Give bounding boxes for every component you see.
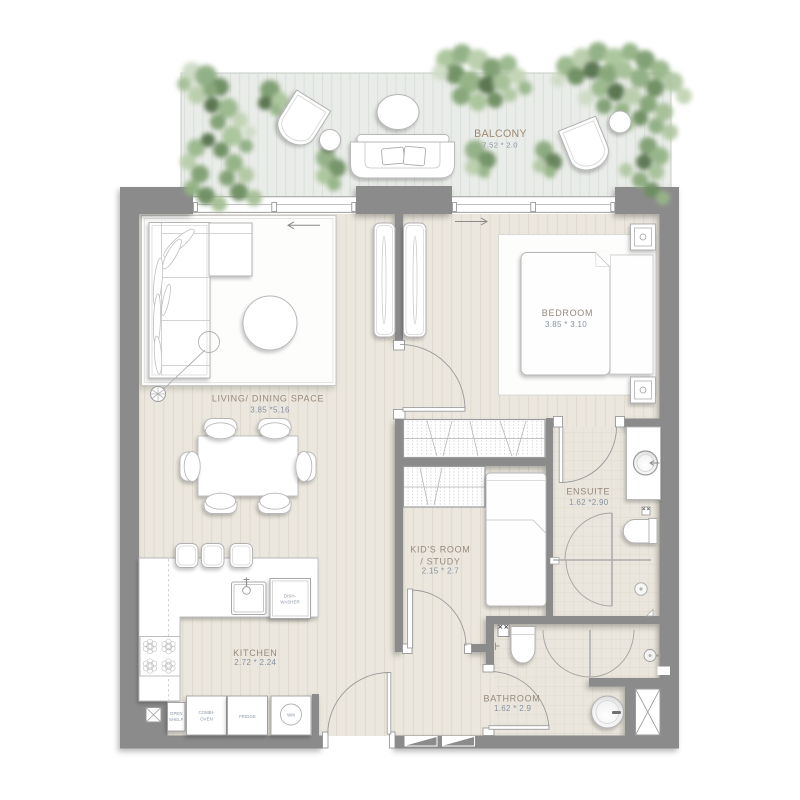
svg-text:ENSUITE: ENSUITE	[566, 487, 610, 497]
svg-text:BALCONY: BALCONY	[474, 128, 527, 140]
svg-text:1.62 *2.90: 1.62 *2.90	[569, 498, 609, 507]
svg-text:3.85 *5.16: 3.85 *5.16	[250, 406, 290, 415]
svg-text:KID'S ROOM: KID'S ROOM	[410, 545, 470, 555]
svg-text:SHELF: SHELF	[169, 717, 184, 722]
svg-text:7.52 * 2.0: 7.52 * 2.0	[482, 141, 518, 150]
svg-text:OPEN: OPEN	[170, 711, 183, 716]
svg-text:KITCHEN: KITCHEN	[233, 648, 277, 658]
svg-text:WM: WM	[287, 713, 295, 718]
svg-text:COMBI-: COMBI-	[198, 710, 215, 715]
svg-text:BEDROOM: BEDROOM	[542, 308, 593, 318]
svg-text:3.85 * 3.10: 3.85 * 3.10	[545, 320, 587, 329]
svg-text:2.15 * 2.7: 2.15 * 2.7	[422, 567, 460, 576]
svg-text:1.62 * 2.9: 1.62 * 2.9	[494, 704, 532, 713]
svg-text:FRIDGE: FRIDGE	[239, 714, 256, 719]
svg-text:OVEN: OVEN	[200, 717, 213, 722]
svg-text:DISH-: DISH-	[284, 594, 297, 599]
svg-text:2.72 * 2.24: 2.72 * 2.24	[234, 658, 276, 667]
svg-text:WASHER: WASHER	[280, 600, 299, 605]
svg-text:LIVING/ DINING SPACE: LIVING/ DINING SPACE	[212, 394, 324, 404]
svg-text:BATHROOM: BATHROOM	[484, 694, 541, 704]
svg-text:/ STUDY: / STUDY	[420, 557, 460, 567]
